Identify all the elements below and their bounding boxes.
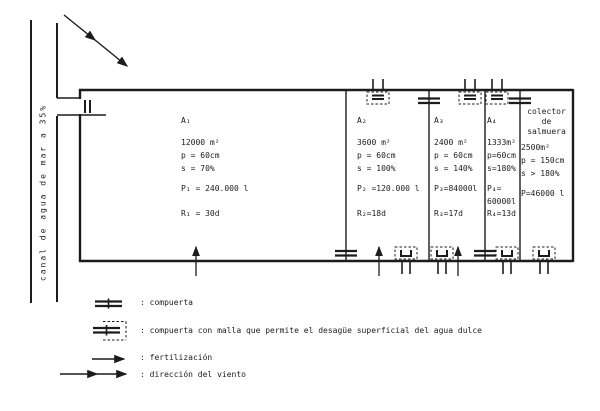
compartment-area: 1333m² [487,136,519,149]
wind-direction-arrow-icon [64,15,127,66]
collector-salinity: s > 180% [521,167,572,180]
canal-label: canal de agua de mar a 35% [37,88,50,298]
compartment-salinity: s = 100% [357,162,425,175]
compuerta-icon [95,299,122,309]
legend-label-compuerta-malla: : compuerta con malla que permite el des… [140,324,482,337]
compartment-label: A₂ [357,114,425,127]
compartment-production: P₂ =120.000 l [357,182,425,195]
salt-pond-diagram: canal de agua de mar a 35% A₁ 12000 m² p… [0,0,600,411]
compartment-a4: A₄ 1333m² p=60cm s=180% P₄= 60000l R₄=13… [487,114,519,220]
compuerta-malla-icon [93,322,126,341]
brine-collector: colector de salmuera 2500m² p = 150cm s … [521,107,572,200]
legend-label-compuerta: : compuerta [140,296,193,309]
compartment-label: A₁ [181,114,271,127]
compartment-depth: p = 60cm [181,149,271,162]
compartment-salinity: s=180% [487,162,519,175]
compartment-area: 12000 m² [181,136,271,149]
compartment-area: 2400 m² [434,136,484,149]
compartment-depth: p = 60cm [434,149,484,162]
legend-label-fertilizacion: : fertilización [140,351,212,364]
collector-area: 2500m² [521,141,572,154]
legend-label-viento: : dirección del viento [140,368,246,381]
inlet-compuerta-icon [85,100,90,113]
compartment-depth: p=60cm [487,149,519,162]
compartment-a3: A₃ 2400 m² p = 60cm s = 140% P₃=84000l R… [434,114,484,220]
compartment-depth: p = 60cm [357,149,425,162]
compartment-salinity: s = 70% [181,162,271,175]
compuerta-malla-icon [459,79,481,104]
compartment-production: P₄= 60000l [487,182,519,208]
collector-production: P=46000 l [521,187,572,200]
compartment-production: P₁ = 240.000 l [181,182,271,195]
compartment-salinity: s = 140% [434,162,484,175]
compartment-label: A₃ [434,114,484,127]
legend-symbols [60,299,126,375]
compartment-a2: A₂ 3600 m² p = 60cm s = 100% P₂ =120.000… [357,114,425,220]
collector-depth: p = 150cm [521,154,572,167]
collector-title: colector de salmuera [521,107,572,137]
compartment-residence: R₄=13d [487,207,519,220]
compuerta-malla-icon [367,79,389,104]
compartment-production: P₃=84000l [434,182,484,195]
mesh-gates-top [367,79,508,104]
compartment-label: A₄ [487,114,519,127]
compartment-residence: R₃=17d [434,207,484,220]
compartment-area: 3600 m² [357,136,425,149]
compartment-residence: R₁ = 30d [181,207,271,220]
compuerta-malla-icon [486,79,508,104]
compartment-residence: R₂=18d [357,207,425,220]
compartment-a1: A₁ 12000 m² p = 60cm s = 70% P₁ = 240.00… [181,114,271,220]
